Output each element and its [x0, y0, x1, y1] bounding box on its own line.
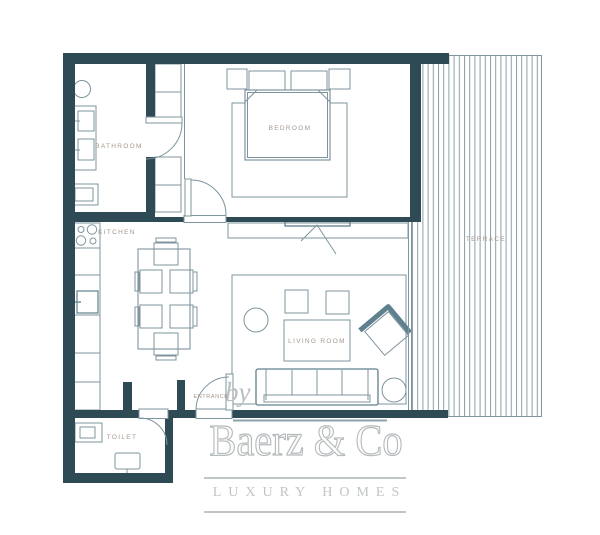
- kitchen-label: KITCHEN: [98, 229, 136, 236]
- chair: [154, 243, 178, 265]
- toilet-door-arc: [140, 418, 167, 445]
- kitchen-counter: [73, 248, 100, 410]
- armchair: [360, 307, 411, 358]
- pillow-right: [291, 71, 327, 90]
- nightstand-left: [227, 69, 247, 89]
- toilet-wc: [115, 453, 140, 469]
- bedroom-door-leaf: [185, 179, 191, 216]
- toilet-fixtures: [75, 423, 140, 476]
- bathroom-label: BATHROOM: [95, 143, 142, 150]
- terrace-label: TERRACE: [466, 236, 506, 243]
- wall-bath-right-b: [146, 157, 155, 222]
- bathroom-stool: [74, 81, 91, 98]
- sofa: [256, 369, 378, 405]
- logo-tagline: LUXURY HOMES: [199, 485, 413, 501]
- bedroom-door-arc: [191, 180, 226, 216]
- entrance-label: ENTRANCE: [193, 394, 228, 400]
- vanity-sink-top: [78, 111, 94, 131]
- floor-plan-page: BATHROOM BEDROOM KITCHEN LIVING ROOM TER…: [0, 0, 600, 535]
- wall-bedroom-living: [226, 217, 412, 222]
- wall-left: [63, 53, 75, 483]
- bedroom-label: BEDROOM: [269, 125, 312, 132]
- living-room-furniture: [244, 290, 411, 405]
- toilet-label: TOILET: [107, 434, 137, 441]
- bathroom-door-leaf: [146, 117, 182, 123]
- wall-bedroom-right: [410, 53, 421, 222]
- logo-brand-name: Baerz & Co: [208, 419, 405, 463]
- dining-table: [138, 249, 190, 349]
- chair: [140, 305, 162, 328]
- wall-stub-1: [123, 382, 132, 410]
- logo-byline: by: [225, 379, 265, 406]
- living-room-label: LIVING ROOM: [288, 338, 346, 345]
- wall-bottom-1: [63, 410, 140, 418]
- chair: [154, 333, 178, 355]
- wall-toilet-right: [165, 410, 173, 483]
- tv-sideboard: [228, 222, 408, 255]
- dining-set: [135, 238, 197, 360]
- wall-bedroom-left: [146, 217, 184, 222]
- wall-toilet-bottom: [63, 473, 173, 483]
- logo-rule-top: [204, 477, 406, 479]
- wall-bath-right-a: [146, 64, 155, 119]
- side-table: [285, 290, 308, 313]
- toilet-sink: [75, 423, 102, 442]
- vanity-sink-bottom: [78, 139, 94, 160]
- toilet-door-threshold: [139, 409, 168, 419]
- nightstand-right: [329, 69, 350, 89]
- wall-stub-2: [177, 380, 185, 410]
- chair: [140, 270, 162, 293]
- bedroom-furniture: [227, 69, 350, 160]
- bathroom-door-arc: [146, 123, 182, 159]
- pouf: [382, 378, 406, 402]
- wall-top: [63, 53, 449, 64]
- pillow-left: [249, 71, 285, 90]
- wardrobe-closet: [155, 64, 185, 212]
- round-table: [244, 308, 268, 332]
- bedroom-door-threshold: [184, 216, 226, 223]
- wall-bath-divider: [63, 212, 155, 222]
- logo-rule-bottom: [204, 511, 406, 513]
- side-table: [326, 291, 349, 314]
